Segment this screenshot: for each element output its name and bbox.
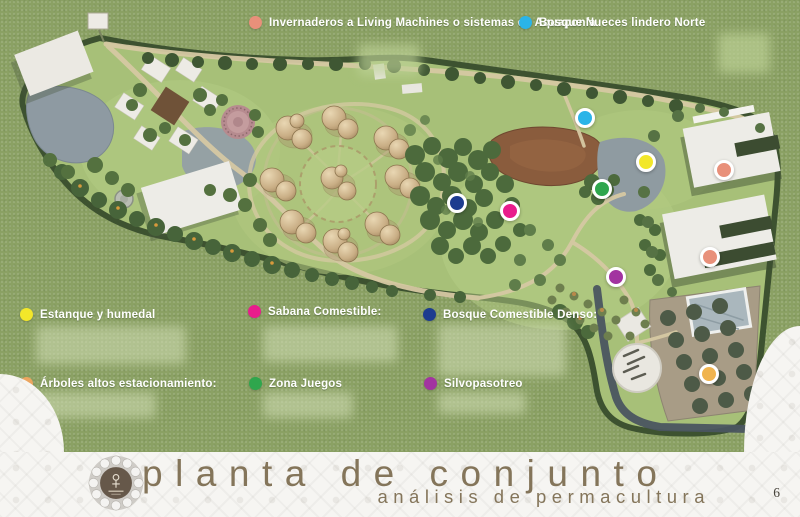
legend-item-bosque-denso: Bosque Comestible Denso: (423, 308, 597, 321)
map-area: Invernaderos a Living Machines o sistema… (0, 0, 800, 452)
legend-label: Silvopasotreo (444, 378, 523, 390)
legend-item-arboles: Árboles altos estacionamiento: (20, 377, 217, 390)
legend-dot-bosque-nueces (519, 16, 532, 29)
legend-item-estanque: Estanque y humedal (20, 308, 155, 321)
legend-item-zona-juegos: Zona Juegos (249, 377, 342, 390)
legend-label: Estanque y humedal (40, 309, 155, 321)
legend-label: Árboles altos estacionamiento: (40, 378, 217, 390)
bosque-nueces-marker (575, 108, 595, 128)
bosque-comestible-denso-marker (447, 193, 467, 213)
blurred-watermark (718, 33, 770, 73)
estanque-humedal-marker (636, 152, 656, 172)
invernadero-north-marker (714, 160, 734, 180)
title-bar: planta de conjunto análisis de permacult… (0, 452, 800, 517)
legend-label: Zona Juegos (269, 378, 342, 390)
legend-label: Bosque Comestible Denso: (443, 309, 597, 321)
legend-label: Sabana Comestible: (268, 306, 382, 318)
page-subtitle: análisis de permacultura (377, 486, 710, 508)
silvopastoreo-marker (606, 267, 626, 287)
page-number: 6 (773, 485, 780, 501)
legend-label: Bosque Nueces lindero Norte (539, 17, 705, 29)
invernadero-south-marker (700, 247, 720, 267)
sabana-comestible-marker (500, 201, 520, 221)
legend-item-sabana: Sabana Comestible: (248, 305, 382, 318)
arboles-estacionamiento-marker (699, 364, 719, 384)
legend-dot-zona-juegos (249, 377, 262, 390)
blurred-text-1 (36, 326, 186, 364)
legend-dot-estanque (20, 308, 33, 321)
blurred-patch-map (358, 44, 420, 76)
legend-item-silvopastoreo: Silvopasotreo (424, 377, 523, 390)
legend-item-bosque-nueces: Bosque Nueces lindero Norte (519, 16, 705, 29)
legend-dot-silvopastoreo (424, 377, 437, 390)
legend-dot-sabana (248, 305, 261, 318)
logo-medallion (86, 453, 146, 513)
blurred-text-5 (263, 392, 353, 418)
legend-dot-bosque-denso (423, 308, 436, 321)
slide-page: Invernaderos a Living Machines o sistema… (0, 0, 800, 517)
legend-dot-invernaderos (249, 16, 262, 29)
zona-juegos-marker (592, 179, 612, 199)
blurred-text-3 (438, 324, 566, 376)
blurred-text-2 (263, 326, 398, 362)
blurred-text-6 (438, 392, 526, 414)
